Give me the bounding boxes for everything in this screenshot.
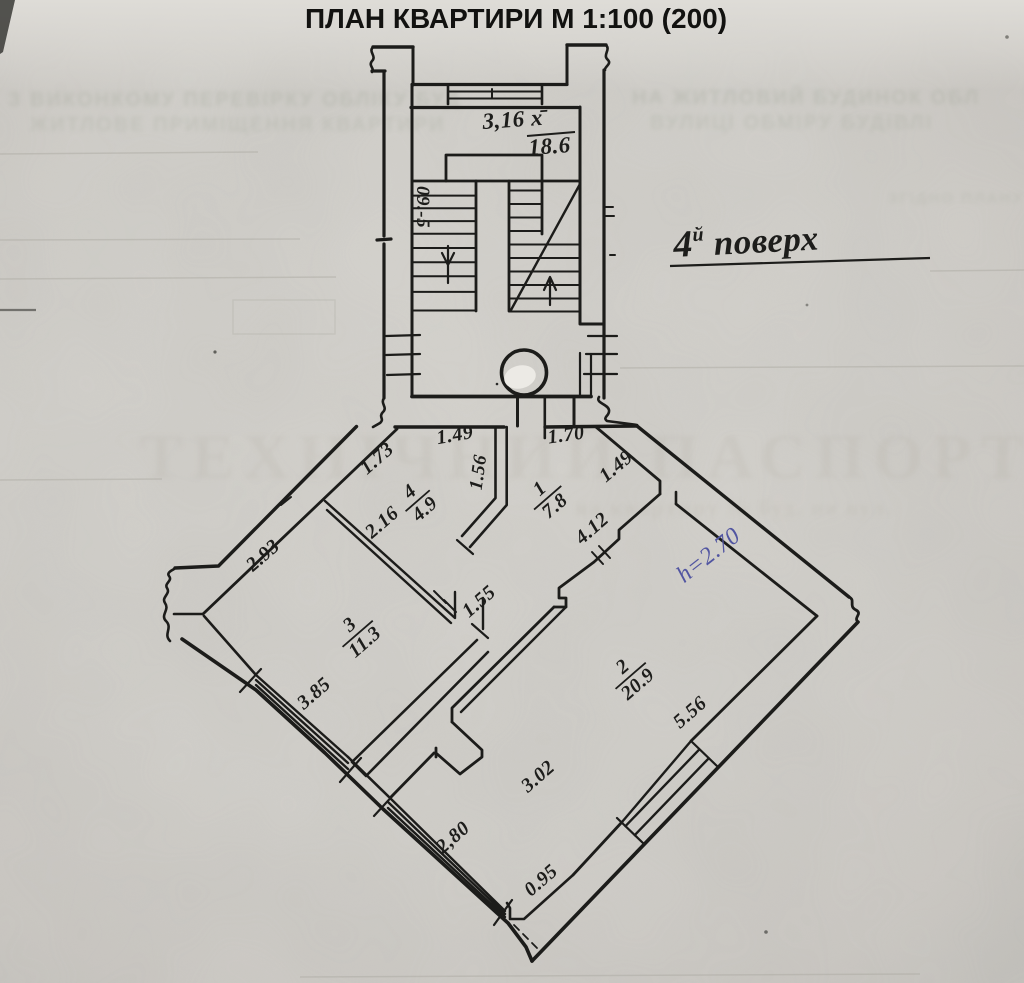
svg-text:ЗГІДНО ПЛАНУ: ЗГІДНО ПЛАНУ [888, 190, 1024, 207]
svg-text:18.6: 18.6 [528, 132, 572, 160]
svg-text:3,16 х̄: 3,16 х̄ [481, 104, 550, 134]
svg-text:ПЛАН КВАРТИРИ М 1:100 (200): ПЛАН КВАРТИРИ М 1:100 (200) [305, 3, 727, 34]
svg-text:на квартиру № буд. по вул.: на квартиру № буд. по вул. [575, 495, 894, 520]
svg-text:09.-5: 09.-5 [412, 186, 433, 228]
svg-text:НА ЖИТЛОВИЙ БУДИНОК ОБЛ: НА ЖИТЛОВИЙ БУДИНОК ОБЛ [632, 85, 980, 109]
svg-text:ВУЛИЦІ ОБМІРУ БУДІВЛІ: ВУЛИЦІ ОБМІРУ БУДІВЛІ [650, 112, 933, 134]
svg-text:З ВИКОНКОМУ ПЕРЕВІРКУ ОБЛІКУ Б: З ВИКОНКОМУ ПЕРЕВІРКУ ОБЛІКУ БУД [8, 89, 461, 111]
